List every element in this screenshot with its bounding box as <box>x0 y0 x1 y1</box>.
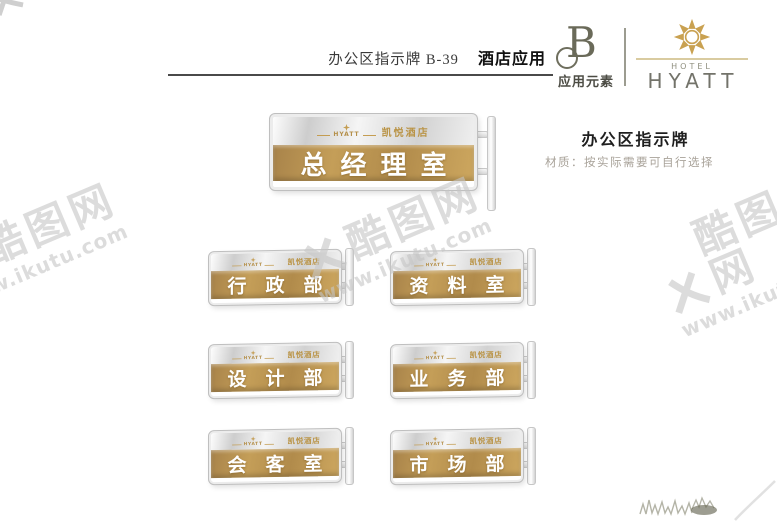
curve-decoration <box>732 478 777 523</box>
document-code: 办公区指示牌 B-39 <box>328 52 459 68</box>
mount-post <box>527 427 536 485</box>
hotel-name-cn: 凯悦酒店 <box>288 434 321 446</box>
mount-post <box>527 248 536 306</box>
sign-label: 设计部 <box>227 362 341 391</box>
hotel-name-cn: 凯悦酒店 <box>288 348 321 360</box>
sign-business-dept: HYATT 凯悦酒店 业务部 <box>391 343 523 398</box>
emblem-brand-text: HYATT <box>426 262 445 267</box>
emblem-brand-text: HYATT <box>244 355 263 360</box>
sign-admin-dept: HYATT 凯悦酒店 行政部 <box>209 250 341 305</box>
sun-icon <box>250 436 255 441</box>
sign-reference-room: HYATT 凯悦酒店 资料室 <box>391 250 523 305</box>
sign-label: 会客室 <box>227 448 341 477</box>
document-title-bold: 酒店应用 <box>478 49 546 68</box>
mount-post <box>487 116 496 211</box>
hyatt-emblem: HYATT <box>414 256 456 267</box>
b-mark-letter: B <box>566 20 597 66</box>
emblem-line <box>317 135 330 136</box>
emblem-line <box>363 135 376 136</box>
emblem-line <box>232 358 241 359</box>
emblem-line <box>414 358 423 359</box>
watermark-url: www.ikutu.com <box>0 218 133 314</box>
brand-rule <box>636 58 748 60</box>
sun-burst-icon <box>672 17 712 57</box>
sun-icon <box>432 257 437 262</box>
document-title: 办公区指示牌 B-39 酒店应用 <box>170 50 546 69</box>
header-rule <box>168 74 553 76</box>
mount-post <box>345 248 354 306</box>
hyatt-logo: HOTEL HYATT <box>636 17 748 91</box>
sign-reception-room: HYATT 凯悦酒店 会客室 <box>209 429 341 484</box>
sign-name-plate: 市场部 <box>393 448 521 478</box>
emblem-brand-text: HYATT <box>426 441 445 446</box>
element-b-mark: B <box>556 26 618 72</box>
emblem-brand-text: HYATT <box>426 355 445 360</box>
hotel-name-cn: 凯悦酒店 <box>470 348 503 360</box>
watermark-x-icon <box>660 263 715 318</box>
emblem-line <box>414 265 423 266</box>
emblem-line <box>447 264 456 265</box>
hotel-name-cn: 凯悦酒店 <box>288 255 321 267</box>
emblem-line <box>265 357 274 358</box>
emblem-brand-text: HYATT <box>244 262 263 267</box>
emblem-line <box>414 444 423 445</box>
hyatt-emblem: HYATT <box>414 349 456 360</box>
hotel-name-cn: 凯悦酒店 <box>470 255 503 267</box>
emblem-brand-text: HYATT <box>244 441 263 446</box>
sign-brand-strip: HYATT 凯悦酒店 <box>273 117 474 145</box>
sun-icon <box>250 350 255 355</box>
sign-name-plate: 行政部 <box>211 269 339 299</box>
hotel-name-cn: 凯悦酒店 <box>470 434 503 446</box>
sign-name-plate: 总经理室 <box>273 145 474 181</box>
design-sheet: 办公区指示牌 B-39 酒店应用 B 应用元素 HOTEL HYATT 办公区指 <box>0 0 777 523</box>
sun-icon <box>432 350 437 355</box>
header-divider <box>624 28 626 86</box>
emblem-line <box>265 443 274 444</box>
element-label: 应用元素 <box>558 71 614 90</box>
sun-icon <box>432 436 437 441</box>
material-note: 材质：按实际需要可自行选择 <box>545 154 714 170</box>
sign-category-title: 办公区指示牌 <box>558 126 713 150</box>
sign-label: 行政部 <box>227 269 341 298</box>
watermark: 酷图网 www.ikutu.com <box>644 168 777 342</box>
sign-name-plate: 业务部 <box>393 362 521 392</box>
hyatt-emblem: HYATT <box>414 435 456 446</box>
sun-icon <box>250 257 255 262</box>
grass-scribble-decoration <box>638 492 728 518</box>
mount-post <box>345 427 354 485</box>
emblem-line <box>447 443 456 444</box>
sign-label: 市场部 <box>409 448 523 477</box>
watermark-name: 酷图网 <box>688 168 777 300</box>
hyatt-emblem: HYATT <box>317 124 375 138</box>
emblem-line <box>232 265 241 266</box>
hyatt-emblem: HYATT <box>232 256 274 267</box>
sign-name-plate: 会客室 <box>211 448 339 478</box>
sign-label: 总经理室 <box>300 145 460 182</box>
sign-label: 业务部 <box>409 362 523 391</box>
mount-post <box>527 341 536 399</box>
emblem-line <box>232 444 241 445</box>
hotel-name-cn: 凯悦酒店 <box>382 124 430 139</box>
sun-icon <box>343 124 350 131</box>
sign-name-plate: 资料室 <box>393 269 521 299</box>
sign-label: 资料室 <box>409 269 523 298</box>
emblem-line <box>447 357 456 358</box>
emblem-line <box>265 264 274 265</box>
emblem-brand-text: HYATT <box>333 132 359 138</box>
watermark-name: 酷图网 <box>0 178 123 272</box>
watermark-corner-fragment <box>0 0 39 18</box>
brand-name-text: HYATT <box>639 71 748 91</box>
watermark-url: www.ikutu.com <box>678 247 777 342</box>
mount-post <box>345 341 354 399</box>
hyatt-emblem: HYATT <box>232 435 274 446</box>
sign-name-plate: 设计部 <box>211 362 339 392</box>
sign-general-manager-office: HYATT 凯悦酒店 总经理室 <box>270 114 477 190</box>
sign-design-dept: HYATT 凯悦酒店 设计部 <box>209 343 341 398</box>
hyatt-emblem: HYATT <box>232 349 274 360</box>
watermark: 酷图网 www.ikutu.com <box>0 178 133 314</box>
sign-marketing-dept: HYATT 凯悦酒店 市场部 <box>391 429 523 484</box>
